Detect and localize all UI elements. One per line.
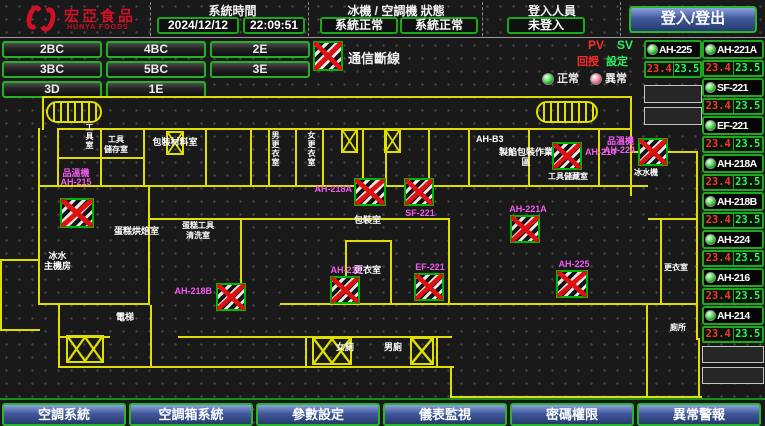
wall xyxy=(450,366,452,398)
equipment-values: 23.423.5 xyxy=(702,326,764,343)
room-label: 製餡包裝作業區 xyxy=(496,147,556,167)
login-user-value: 未登入 xyxy=(507,17,585,34)
floor-button-3e[interactable]: 3E xyxy=(210,61,310,78)
equipment-values: 23.423.5 xyxy=(702,250,764,267)
wall xyxy=(0,259,2,331)
pv-value: 23.4 xyxy=(704,252,734,265)
equipment-values: 23.423.5 xyxy=(702,212,764,229)
normal-led-icon xyxy=(542,73,554,85)
pv-value: 23.4 xyxy=(646,63,674,76)
pv-value: 23.4 xyxy=(704,62,734,75)
nav-button-hvac-system[interactable]: 空調系統 xyxy=(2,403,126,426)
status-led-icon xyxy=(705,120,716,131)
pv-header: PV xyxy=(588,38,604,52)
equipment-name: AH-224 xyxy=(717,234,750,246)
marker-sf-221[interactable] xyxy=(404,178,434,206)
wall xyxy=(648,218,696,220)
room-label: 蛋糕烘焙室 xyxy=(114,226,159,236)
sv-value: 23.5 xyxy=(734,328,763,341)
wall xyxy=(150,305,152,366)
wall xyxy=(448,218,450,305)
pv-value: 23.4 xyxy=(704,328,734,341)
marker-ah-224[interactable] xyxy=(638,138,668,166)
room-label: 電梯 xyxy=(116,312,134,322)
logo-subtitle: HUNYA FOODS xyxy=(67,24,129,31)
equipment-sf-221[interactable]: SF-221 xyxy=(702,78,764,97)
bottom-bar: 空調系統 空調箱系統 參數設定 儀表監視 密碼權限 異常警報 xyxy=(0,398,765,426)
wall xyxy=(305,336,307,368)
wall xyxy=(295,128,297,185)
normal-label: 正常 xyxy=(557,73,579,85)
wall xyxy=(44,96,632,98)
room-label: 包裝材料室 xyxy=(147,137,203,147)
status-led-icon xyxy=(647,44,658,55)
status-led-icon xyxy=(705,44,716,55)
floor-button-5bc[interactable]: 5BC xyxy=(106,61,206,78)
comm-error-legend-icon xyxy=(313,41,343,71)
marker-ah-218a[interactable] xyxy=(354,178,386,206)
divider xyxy=(620,2,621,36)
sv-value: 23.5 xyxy=(674,63,701,76)
label-line: AH-215 xyxy=(48,178,104,187)
equipment-values: 23.423.5 xyxy=(702,60,764,77)
shaft-icon xyxy=(384,129,401,153)
wall xyxy=(58,157,145,159)
wall xyxy=(322,128,324,185)
wall xyxy=(660,218,662,305)
equipment-values: 23.423.5 xyxy=(702,136,764,153)
marker-ah-214[interactable] xyxy=(552,142,582,170)
label-line: AH-225 xyxy=(550,260,598,269)
equipment-map-label: 品溫機 AH-215 xyxy=(48,169,104,187)
abnormal-legend: 異常 xyxy=(590,70,627,86)
wall xyxy=(468,128,470,185)
nav-button-alarm[interactable]: 異常警報 xyxy=(637,403,761,426)
marker-ah-218b[interactable] xyxy=(216,283,246,311)
room-label: 冰水 主機房 xyxy=(44,251,71,271)
wall xyxy=(58,366,454,368)
sv-name-label: 設定 xyxy=(606,53,628,69)
pv-value: 23.4 xyxy=(704,290,734,303)
pv-name-label: 回授 xyxy=(577,53,599,69)
wall xyxy=(0,259,40,261)
wall xyxy=(646,305,648,396)
marker-ah-215[interactable] xyxy=(60,198,94,228)
wall xyxy=(696,151,698,340)
wall xyxy=(345,240,392,242)
marker-ah-225[interactable] xyxy=(556,270,588,298)
status-led-icon xyxy=(705,234,716,245)
pv-value: 23.4 xyxy=(704,138,734,151)
room-label: 工具儲藏室 xyxy=(546,172,590,182)
date-value: 2024/12/12 xyxy=(157,17,239,34)
status-led-icon xyxy=(705,158,716,169)
equipment-name: AH-225 xyxy=(659,44,692,56)
divider xyxy=(150,2,151,36)
nav-button-password[interactable]: 密碼權限 xyxy=(510,403,634,426)
equipment-ef-221[interactable]: EF-221 xyxy=(702,116,764,135)
equipment-ah-218b[interactable]: AH-218B xyxy=(702,192,764,211)
equipment-ah-221a[interactable]: AH-221A xyxy=(702,40,764,59)
equipment-ah-224[interactable]: AH-224 xyxy=(702,230,764,249)
equipment-name: AH-216 xyxy=(717,272,750,284)
nav-button-parameters[interactable]: 參數設定 xyxy=(256,403,380,426)
empty-slot xyxy=(702,367,764,384)
wall xyxy=(390,240,392,305)
room-label: AH-B3 xyxy=(476,134,504,144)
marker-ah-216[interactable] xyxy=(330,276,360,304)
abnormal-label: 異常 xyxy=(605,73,627,85)
wall xyxy=(436,336,438,368)
equipment-values: 23.423.5 xyxy=(702,174,764,191)
sv-value: 23.5 xyxy=(734,290,763,303)
wall xyxy=(0,329,40,331)
time-value: 22:09:51 xyxy=(243,17,305,34)
stairs-icon xyxy=(46,101,102,123)
equipment-name: AH-218B xyxy=(717,196,757,208)
equipment-map-label: EF-221 xyxy=(408,263,452,272)
room-label: 廁所 xyxy=(670,323,686,333)
equipment-name: SF-221 xyxy=(717,82,748,94)
sv-value: 23.5 xyxy=(734,138,763,151)
elevator-icon xyxy=(66,335,104,363)
equipment-ah-225-values: 23.423.5 xyxy=(644,61,702,78)
floor-button-3bc[interactable]: 3BC xyxy=(2,61,102,78)
wall xyxy=(250,128,252,185)
wall xyxy=(362,128,364,185)
status-led-icon xyxy=(705,310,716,321)
comm-error-legend-label: 通信斷線 xyxy=(348,48,400,67)
label-line: AH-216 xyxy=(322,266,370,275)
wall xyxy=(148,185,150,305)
room-label: 工具室 xyxy=(84,123,94,150)
sv-value: 23.5 xyxy=(734,176,763,189)
divider xyxy=(482,2,483,36)
sv-value: 23.5 xyxy=(734,100,763,113)
normal-legend: 正常 xyxy=(542,70,579,86)
empty-slot xyxy=(702,346,764,363)
sv-header: SV xyxy=(617,38,633,52)
status-led-icon xyxy=(705,82,716,93)
shaft-icon xyxy=(341,129,358,153)
sv-value: 23.5 xyxy=(734,214,763,227)
equipment-map-label: 品溫機 AH-224 xyxy=(604,137,634,155)
logo-title: 宏亞食品 xyxy=(64,5,136,26)
marker-ef-221[interactable] xyxy=(414,273,444,301)
room-label: 男更衣室 xyxy=(270,131,280,167)
nav-button-meter-monitor[interactable]: 儀表監視 xyxy=(383,403,507,426)
equipment-ah-225[interactable]: AH-225 xyxy=(644,40,702,59)
wall xyxy=(38,303,150,305)
room-label: 包裝室 xyxy=(354,215,381,225)
marker-ah-221a[interactable] xyxy=(510,215,540,243)
floor-button-2bc[interactable]: 2BC xyxy=(2,41,102,58)
status-led-icon xyxy=(705,196,716,207)
equipment-ah-216[interactable]: AH-216 xyxy=(702,268,764,287)
chiller-status: 系統正常 xyxy=(320,17,398,34)
label-line: AH-218A xyxy=(300,185,352,194)
pv-value: 23.4 xyxy=(704,214,734,227)
room-label: 冰水機 xyxy=(634,168,658,178)
equipment-name: AH-218A xyxy=(717,158,757,170)
label-line: AH-221A xyxy=(502,205,554,214)
room-label: 女廁 xyxy=(336,342,354,352)
wall xyxy=(698,338,700,398)
equipment-map-label: AH-218A xyxy=(300,185,352,194)
room-label: 工具 儲存室 xyxy=(104,135,128,155)
equipment-map-label: AH-216 xyxy=(322,266,370,275)
wall xyxy=(38,128,40,305)
divider xyxy=(308,2,309,36)
abnormal-led-icon xyxy=(590,73,602,85)
equipment-ah-214[interactable]: AH-214 xyxy=(702,306,764,325)
wall xyxy=(205,128,207,185)
equipment-name: AH-214 xyxy=(717,310,750,322)
room-label: 更衣室 xyxy=(664,263,688,273)
floor-plan: 工具室 工具 儲存室 包裝材料室 男更衣室 女更衣室 AH-B3 製餡包裝作業區… xyxy=(0,93,702,398)
sv-value: 23.5 xyxy=(734,252,763,265)
equipment-name: EF-221 xyxy=(717,120,748,132)
equipment-map-label: AH-218B xyxy=(162,287,212,296)
shaft-icon xyxy=(410,337,434,365)
ac-status: 系統正常 xyxy=(400,17,478,34)
equipment-map-label: SF-221 xyxy=(396,209,444,218)
floor-button-2e[interactable]: 2E xyxy=(210,41,310,58)
equipment-name: AH-221A xyxy=(717,44,757,56)
pv-value: 23.4 xyxy=(704,176,734,189)
label-line: SF-221 xyxy=(396,209,444,218)
equipment-map-label: AH-225 xyxy=(550,260,598,269)
wall xyxy=(148,218,450,220)
status-led-icon xyxy=(705,272,716,283)
nav-button-ahu-system[interactable]: 空調箱系統 xyxy=(129,403,253,426)
equipment-values: 23.423.5 xyxy=(702,288,764,305)
equipment-values: 23.423.5 xyxy=(702,98,764,115)
top-bar: 宏亞食品 HUNYA FOODS 系統時間 2024/12/12 22:09:5… xyxy=(0,0,765,38)
wall xyxy=(42,96,44,130)
equipment-ah-218a[interactable]: AH-218A xyxy=(702,154,764,173)
label-line: AH-224 xyxy=(604,146,634,155)
label-line: AH-218B xyxy=(162,287,212,296)
floor-button-4bc[interactable]: 4BC xyxy=(106,41,206,58)
room-label: 男廁 xyxy=(384,342,402,352)
room-label: 女更衣室 xyxy=(306,131,316,167)
stairs-icon xyxy=(536,101,598,123)
login-logout-button[interactable]: 登入/登出 xyxy=(629,6,757,33)
room-label: 蛋糕工具 清洗室 xyxy=(182,221,214,241)
wall xyxy=(428,128,430,185)
label-line: EF-221 xyxy=(408,263,452,272)
pv-value: 23.4 xyxy=(704,100,734,113)
equipment-map-label: AH-221A xyxy=(502,205,554,214)
sv-value: 23.5 xyxy=(734,62,763,75)
